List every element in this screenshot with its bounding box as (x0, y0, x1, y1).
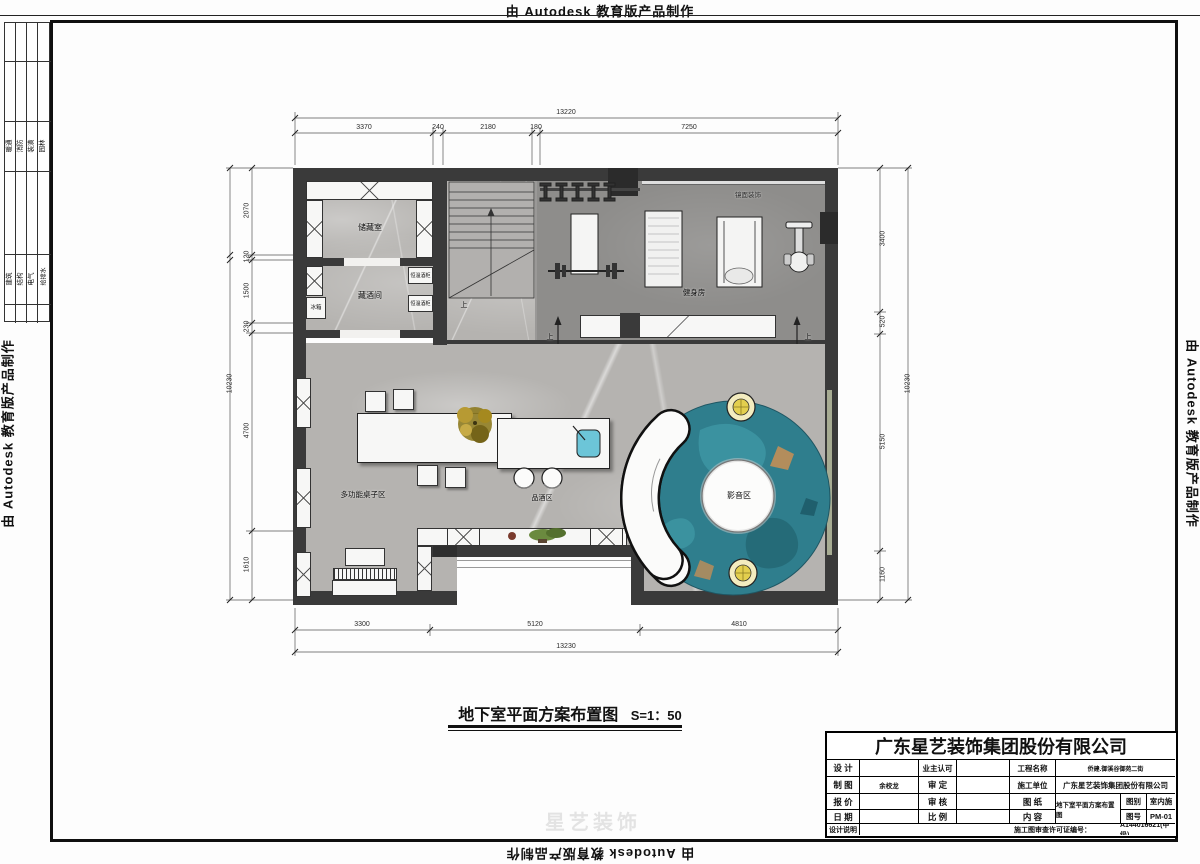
dumbbell-rack (540, 183, 640, 201)
review-value (957, 794, 1010, 810)
dim-bottom-seg: 3300 (342, 621, 382, 628)
exercise-bike (784, 222, 814, 272)
dim-bottom-seg: 4810 (719, 621, 759, 628)
category-label: 图别 (1121, 794, 1147, 810)
scale-label: 比 例 (919, 810, 957, 824)
label-tasting-area: 品酒区 (524, 493, 560, 503)
quote-value (860, 794, 919, 810)
label-wine-fridge-b: 恒温酒柜 (408, 300, 433, 307)
dim-top-seg: 180 (522, 124, 550, 131)
dim-left-seg: 120 (244, 243, 251, 271)
review-label: 审 核 (919, 794, 957, 810)
draft-label: 制 图 (827, 777, 860, 794)
dim-top-seg: 240 (424, 124, 452, 131)
watermark: 星艺装饰 (545, 806, 695, 835)
dim-right-seg: 520 (880, 308, 887, 336)
bar-stools (514, 468, 562, 488)
label-fridge: 冰箱 (306, 303, 326, 311)
project-value: 侨建.御溪谷御苑二街 (1056, 760, 1175, 777)
side-table-top (727, 393, 755, 421)
owner-label: 业主认可 (919, 760, 957, 777)
category-value: 室内施 (1147, 794, 1175, 810)
title-block: 广东星艺装饰集团股份有限公司 设 计 业主认可 工程名称 侨建.御溪谷御苑二街 … (825, 731, 1178, 838)
draft-value: 余校龙 (860, 777, 919, 794)
side-table-bottom (729, 559, 757, 587)
design-value (860, 760, 919, 777)
bar-sink (573, 426, 600, 457)
dim-left-seg: 230 (244, 313, 251, 341)
label-up-left: 上 (544, 332, 556, 342)
caption-underline (448, 725, 682, 731)
drawing-value: 地下室平面方案布置图 (1056, 794, 1121, 824)
dim-bottom-seg: 5120 (515, 621, 555, 628)
dim-left-seg: 1500 (244, 271, 251, 311)
label-gym: 健身房 (672, 287, 716, 298)
scale-value (957, 810, 1010, 824)
drawing-label: 图 纸 (1010, 794, 1056, 810)
label-up-stairs: 上 (458, 300, 470, 310)
license-value: A144016621(甲级) (1120, 824, 1175, 835)
builder-value: 广东星艺装饰集团股份有限公司 (1056, 777, 1175, 794)
weight-machine (717, 217, 762, 287)
project-label: 工程名称 (1010, 760, 1056, 777)
caption-scale: S=1：50 (631, 708, 682, 723)
dim-right-total: 10230 (905, 364, 912, 404)
notes-empty (860, 824, 1010, 835)
builder-label: 施工单位 (1010, 777, 1056, 794)
dim-bottom-total: 13230 (546, 643, 586, 650)
dim-left-seg: 2070 (244, 191, 251, 231)
dim-left-total: 10230 (227, 364, 234, 404)
date-label: 日 期 (827, 810, 860, 824)
dim-top-seg: 3370 (344, 124, 384, 131)
caption-title: 地下室平面方案布置图 (458, 707, 618, 724)
weight-bench (548, 214, 624, 279)
content-label: 内 容 (1010, 810, 1056, 824)
label-up-right: 上 (802, 332, 814, 342)
label-wine-fridge-a: 恒温酒柜 (408, 272, 433, 279)
notes-label: 设计说明 (827, 824, 860, 835)
dim-right-seg: 1160 (880, 555, 887, 595)
dim-top-seg: 7250 (669, 124, 709, 131)
up-arrow (555, 316, 801, 344)
treadmill (645, 211, 682, 287)
dim-top-total: 13220 (546, 109, 586, 116)
dim-right-seg: 5150 (880, 422, 887, 462)
label-wine-room: 藏酒间 (346, 290, 394, 301)
label-mirror-decor: 镜面装饰 (722, 189, 774, 199)
cabinet-bonsai (508, 528, 566, 543)
label-multi-table-area: 多功能桌子区 (330, 489, 396, 500)
drawing-caption: 地下室平面方案布置图 S=1：50 (440, 701, 700, 725)
company-name: 广东星艺装饰集团股份有限公司 (827, 733, 1175, 760)
license-label: 施工图审查许可证编号： (1010, 824, 1120, 835)
dim-left-seg: 4700 (244, 411, 251, 451)
quote-label: 报 价 (827, 794, 860, 810)
label-media-area: 影音区 (722, 490, 756, 501)
dim-top-seg: 2180 (468, 124, 508, 131)
label-storage-room: 储藏室 (346, 222, 394, 233)
dim-right-seg: 3400 (880, 219, 887, 259)
number-value: PM-01 (1147, 810, 1175, 824)
approve-label: 审 定 (919, 777, 957, 794)
number-label: 图号 (1121, 810, 1147, 824)
design-label: 设 计 (827, 760, 860, 777)
owner-value (957, 760, 1010, 777)
approve-value (957, 777, 1010, 794)
table-plant (457, 407, 492, 443)
date-value (860, 810, 919, 824)
staircase (449, 182, 534, 298)
dim-left-seg: 1610 (244, 545, 251, 585)
